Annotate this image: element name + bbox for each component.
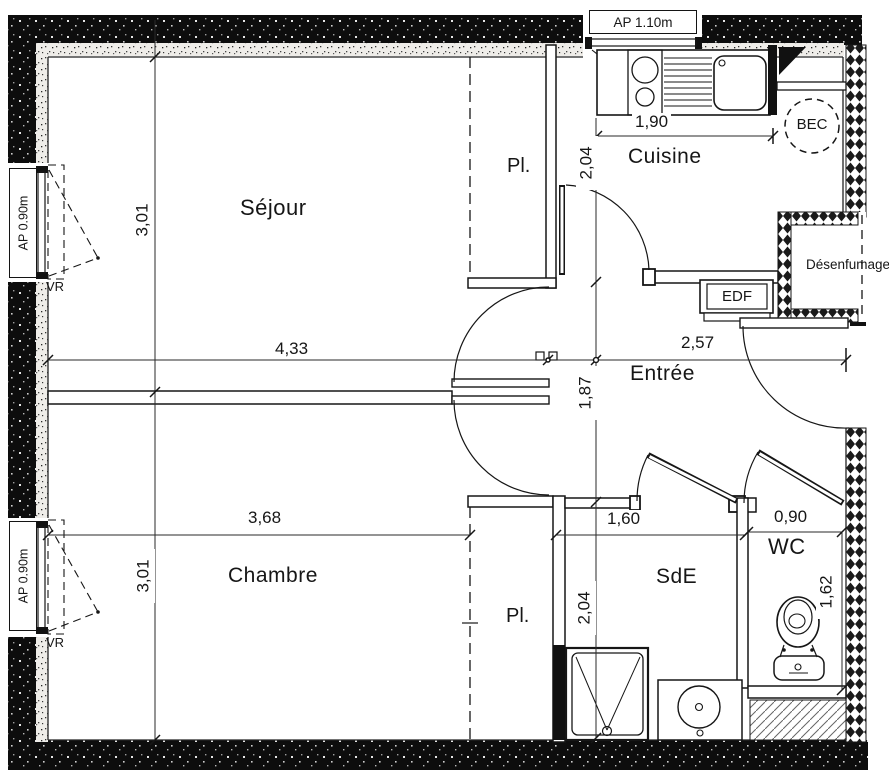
- sde-door-jamb: [630, 496, 640, 510]
- dim-hall-width: 2,57: [678, 334, 717, 351]
- room-label-wc: WC: [768, 536, 806, 558]
- window-label-kitchen: AP 1.10m: [589, 10, 697, 34]
- toilet-tank: [774, 656, 824, 680]
- closet-label-bottom: Pl.: [506, 606, 529, 626]
- window-label-bedroom-text: AP 0.90m: [16, 549, 30, 604]
- closet-label-top: Pl.: [507, 156, 530, 176]
- bec-label: BEC: [789, 117, 835, 132]
- closet-bottom-top-wall: [468, 496, 553, 507]
- wall-left: [8, 15, 36, 760]
- dim-living-depth-text: 3,01: [133, 203, 153, 236]
- dim-wc-depth: 1,62: [816, 565, 838, 619]
- dim-living-depth: 3,01: [132, 193, 154, 247]
- room-label-sde: SdE: [656, 566, 697, 587]
- wc-duct: [750, 700, 846, 740]
- window-label-bedroom: AP 0.90m: [9, 521, 37, 631]
- wc-bottom-wall: [748, 686, 846, 698]
- room-label-chambre: Chambre: [228, 565, 318, 586]
- partition-wall: [48, 391, 452, 404]
- desenfumage-label: Désenfumage: [806, 258, 889, 272]
- room-label-entree: Entrée: [630, 363, 695, 384]
- wall-right-insulated-top: [846, 45, 866, 217]
- entrance-door-leaf: [740, 318, 848, 328]
- wall-bottom: [8, 740, 868, 770]
- wc-sde-wall: [737, 498, 748, 688]
- paper: [0, 0, 889, 774]
- toilet-bowl: [777, 597, 819, 647]
- floor-plan-page: { "plan": { "rooms": { "sejour": "Séjour…: [0, 0, 889, 774]
- floor-plan-drawing: [0, 0, 889, 774]
- shutter-label-bedroom: VR: [46, 636, 64, 649]
- window-label-living-text: AP 0.90m: [16, 196, 30, 251]
- bedroom-door-leaf: [452, 396, 549, 404]
- niche-shelf: [777, 82, 846, 90]
- dim-hall-depth-text: 1,87: [576, 376, 596, 409]
- window-label-living: AP 0.90m: [9, 168, 37, 278]
- wall-right-insulated-bottom: [846, 428, 866, 742]
- dim-sde-depth: 2,04: [574, 581, 596, 635]
- dim-wc-depth-text: 1,62: [817, 575, 837, 608]
- living-door-leaf: [452, 379, 549, 387]
- kitchen-side-wall: [768, 45, 777, 115]
- dim-kitchen-depth-text: 2,04: [577, 146, 597, 179]
- dim-bedroom-depth: 3,01: [133, 549, 155, 603]
- dim-wc-width: 0,90: [771, 508, 810, 525]
- dim-sde-width: 1,60: [604, 510, 643, 527]
- dim-living-width: 4,33: [272, 340, 311, 357]
- dim-bedroom-depth-text: 3,01: [134, 559, 154, 592]
- dim-kitchen-width: 1,90: [632, 113, 671, 130]
- kitchen-door-jamb: [643, 269, 655, 285]
- dim-bedroom-width: 3,68: [245, 509, 284, 526]
- room-label-sejour: Séjour: [240, 197, 307, 219]
- sde-top-wall: [565, 498, 638, 508]
- dim-sde-depth-text: 2,04: [575, 591, 595, 624]
- kitchen-counter: [597, 50, 770, 115]
- dim-hall-depth: 1,87: [575, 366, 597, 420]
- shutter-label-living: VR: [46, 280, 64, 293]
- room-label-cuisine: Cuisine: [628, 146, 702, 167]
- dim-kitchen-depth: 2,04: [576, 136, 598, 190]
- edf-label: EDF: [707, 284, 767, 309]
- wall-top: [8, 15, 862, 45]
